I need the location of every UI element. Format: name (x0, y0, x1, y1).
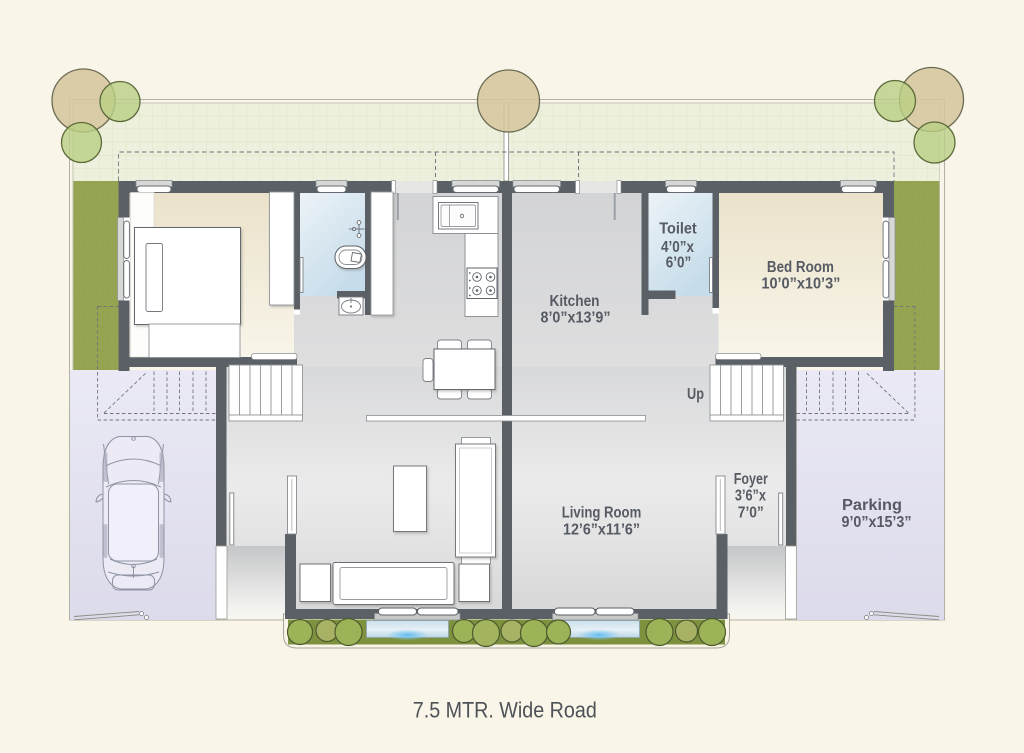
svg-text:4’0”x: 4’0”x (661, 239, 694, 256)
svg-text:7.5 MTR. Wide Road: 7.5 MTR. Wide Road (413, 698, 597, 723)
svg-text:3’6”x: 3’6”x (735, 488, 766, 505)
svg-text:Kitchen: Kitchen (550, 293, 600, 310)
svg-text:Up: Up (687, 386, 704, 403)
svg-text:7’0”: 7’0” (738, 505, 764, 522)
svg-text:Parking: Parking (842, 497, 902, 514)
svg-text:Toilet: Toilet (659, 221, 697, 238)
svg-text:Living Room: Living Room (562, 505, 642, 522)
svg-text:Foyer: Foyer (734, 471, 768, 488)
svg-text:Bed Room: Bed Room (767, 259, 834, 276)
svg-text:6’0”: 6’0” (666, 255, 692, 272)
svg-text:8’0”x13’9”: 8’0”x13’9” (541, 310, 611, 327)
svg-text:10’0”x10’3”: 10’0”x10’3” (761, 276, 840, 293)
svg-text:9’0”x15’3”: 9’0”x15’3” (842, 514, 912, 531)
svg-text:12’6”x11’6”: 12’6”x11’6” (563, 522, 640, 539)
